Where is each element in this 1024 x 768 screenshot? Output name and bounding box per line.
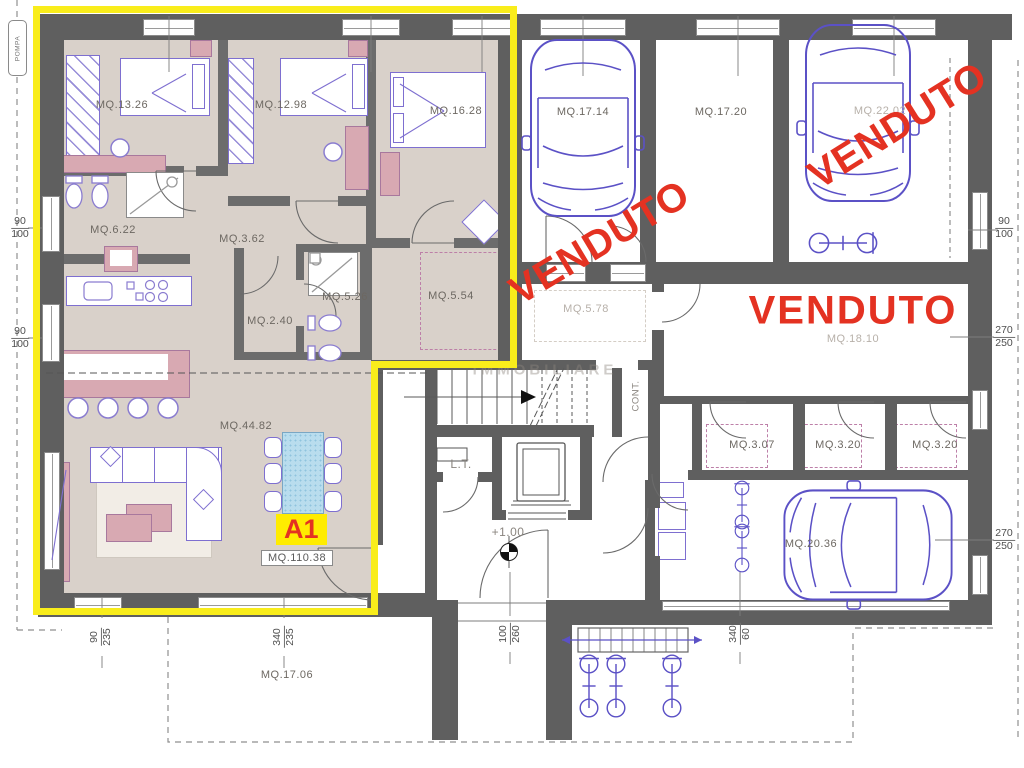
wall [580, 437, 592, 519]
chair [324, 463, 342, 484]
wall [432, 600, 458, 740]
dining-table [282, 432, 324, 514]
kitchen-island-top [50, 354, 168, 380]
room-label-cellar1: MQ.3.07 [729, 439, 775, 451]
kitchen-counter [66, 276, 192, 306]
pillow [192, 64, 205, 109]
room-label-storeroom: MQ.18.10 [827, 333, 879, 345]
highlight-outline-bottom [33, 608, 378, 615]
nightstand [190, 40, 212, 57]
partition [234, 248, 244, 360]
room-label-garage1: MQ.17.14 [557, 106, 609, 118]
room-label-hallway: MQ.3.62 [219, 233, 265, 245]
level-marker-icon [501, 536, 518, 568]
wall [478, 472, 495, 482]
dimension-right-upper: 90 100 [995, 216, 1013, 240]
wall [648, 556, 660, 600]
bike-icon [734, 481, 749, 529]
room-label-bedroom3: MQ.16.28 [430, 105, 482, 117]
wall [652, 396, 992, 404]
window [44, 452, 60, 570]
coffee-table [106, 514, 152, 542]
window [972, 555, 988, 595]
window [342, 19, 400, 36]
shower [308, 252, 358, 296]
room-label-bedroom2: MQ.12.98 [255, 99, 307, 111]
wall [688, 470, 992, 480]
storage-box [658, 532, 686, 560]
window [972, 192, 988, 250]
sold-stamp-garage3: VENDUTO [800, 53, 995, 198]
dimension-bottom-window1: 90 235 [89, 628, 113, 646]
dimension-right-mid: 270 250 [993, 325, 1015, 349]
room-label-terrace: MQ.17.06 [261, 669, 313, 681]
highlight-outline-right-lower [371, 361, 378, 615]
pillow [393, 77, 404, 107]
pump-label: POMPA [14, 35, 21, 61]
door-opening [610, 264, 646, 282]
chair [264, 491, 282, 512]
bike-icon [606, 655, 626, 717]
bike-rack [562, 628, 702, 652]
wall [425, 472, 443, 482]
room-label-bedroom1: MQ.13.26 [96, 99, 148, 111]
wall [425, 518, 437, 600]
stairs-direction-arrow [521, 390, 536, 404]
floor-plan: MQ.13.26 MQ.12.98 MQ.16.28 MQ.6.22 MQ.3.… [0, 0, 1024, 768]
kitchen-appliance-top [110, 250, 132, 266]
highlight-outline-right [510, 6, 517, 368]
room-label-garage4: MQ.20.36 [785, 538, 837, 550]
nightstand [348, 40, 368, 57]
partition [228, 196, 290, 206]
highlight-outline-left [33, 6, 40, 615]
storage-box [658, 482, 684, 498]
chair [264, 437, 282, 458]
window [42, 196, 60, 252]
dimension-bottom-window2: 340 235 [272, 626, 296, 648]
room-label-bathroom1: MQ.6.22 [90, 224, 136, 236]
lift-label: L.T. [450, 457, 471, 471]
pillow [352, 64, 365, 109]
dimension-left-upper: 90 100 [11, 216, 29, 240]
room-label-living: MQ.44.82 [220, 420, 272, 432]
wall [648, 368, 660, 508]
shower [126, 172, 184, 218]
dimension-bottom-right: 340 60 [728, 623, 752, 645]
room-label-cellar2: MQ.3.20 [815, 439, 861, 451]
garage-door [852, 19, 936, 36]
room-label-corridor: MQ.5.78 [563, 303, 609, 315]
wall [793, 404, 805, 470]
dimension-right-lower: 270 250 [993, 528, 1015, 552]
wall [432, 425, 594, 437]
desk [345, 126, 369, 190]
cont-label: CONT. [631, 381, 642, 412]
dresser [380, 152, 400, 196]
garage-door [540, 19, 626, 36]
chair [324, 437, 342, 458]
dimension-entrance-door: 100 260 [498, 623, 522, 645]
partition [296, 244, 368, 252]
elevator [437, 443, 571, 519]
partition [296, 248, 304, 280]
level-label: +1.00 [492, 525, 525, 539]
wall [568, 510, 592, 520]
room-label-garage2: MQ.17.20 [695, 106, 747, 118]
dimension-left-lower: 90 100 [11, 326, 29, 350]
wardrobe [66, 55, 100, 167]
window [452, 19, 512, 36]
room-label-cellar3: MQ.3.20 [912, 439, 958, 451]
window [42, 304, 60, 362]
wall [968, 40, 992, 625]
room-label-bathroom2: MQ.5.26 [322, 291, 368, 303]
partition [218, 40, 228, 172]
wardrobe [228, 58, 254, 164]
partition [234, 352, 368, 360]
room-label-anteroom: MQ.2.40 [247, 315, 293, 327]
total-area-box: MQ.110.38 [261, 550, 333, 566]
storage-box [658, 502, 686, 530]
wall [692, 404, 702, 470]
garage-door [696, 19, 780, 36]
partition [196, 166, 228, 176]
unit-badge: A1 [276, 514, 327, 545]
pillow [393, 113, 404, 143]
window [662, 601, 950, 611]
highlight-outline-top [33, 6, 517, 13]
partition [376, 238, 410, 248]
bike-icon [662, 655, 682, 717]
window [143, 19, 195, 36]
pump-label-box: POMPA [8, 20, 27, 76]
chair [324, 491, 342, 512]
bike-icon [809, 232, 876, 254]
car-icon [522, 40, 644, 216]
bike-icon [734, 524, 749, 572]
window [972, 390, 988, 430]
partition [366, 196, 376, 248]
wall [492, 510, 506, 520]
wall [885, 404, 897, 470]
wall [652, 284, 664, 292]
wall [773, 40, 789, 266]
highlight-outline-mid [371, 361, 517, 368]
sold-stamp-storeroom: VENDUTO [749, 289, 958, 334]
wall [546, 600, 572, 740]
room-label-closet: MQ.5.54 [428, 290, 474, 302]
wall [425, 368, 437, 518]
chair [264, 463, 282, 484]
bike-icon [579, 655, 599, 717]
desk [58, 155, 166, 173]
